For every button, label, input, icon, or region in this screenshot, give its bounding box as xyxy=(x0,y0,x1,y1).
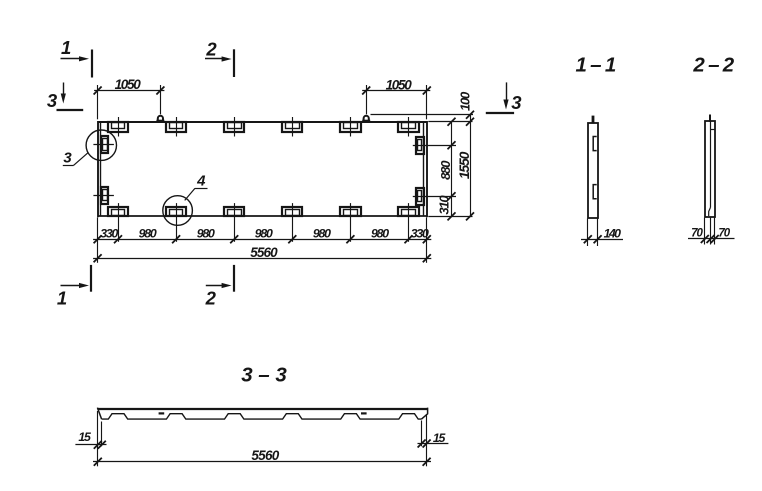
svg-text:880: 880 xyxy=(438,160,453,180)
svg-text:980: 980 xyxy=(371,227,389,241)
svg-text:310: 310 xyxy=(436,195,451,215)
svg-text:15: 15 xyxy=(433,431,446,445)
svg-text:1050: 1050 xyxy=(386,78,413,93)
svg-text:70: 70 xyxy=(718,228,730,240)
svg-text:1: 1 xyxy=(61,37,71,58)
svg-text:15: 15 xyxy=(78,430,91,444)
svg-text:330: 330 xyxy=(100,227,118,241)
svg-text:100: 100 xyxy=(458,91,473,111)
svg-text:140: 140 xyxy=(604,226,621,240)
svg-text:4: 4 xyxy=(196,172,206,189)
svg-text:2 – 2: 2 – 2 xyxy=(692,53,734,76)
svg-text:70: 70 xyxy=(691,228,703,240)
svg-text:980: 980 xyxy=(313,227,331,241)
svg-text:3 – 3: 3 – 3 xyxy=(241,364,287,387)
svg-text:980: 980 xyxy=(139,227,157,241)
svg-text:3: 3 xyxy=(47,90,58,111)
svg-text:1050: 1050 xyxy=(115,77,142,92)
svg-text:2: 2 xyxy=(205,288,217,309)
svg-text:330: 330 xyxy=(411,227,429,241)
svg-text:980: 980 xyxy=(197,227,215,241)
svg-text:1550: 1550 xyxy=(456,151,472,179)
svg-text:3: 3 xyxy=(63,149,72,166)
svg-text:1 – 1: 1 – 1 xyxy=(575,53,615,76)
svg-text:5560: 5560 xyxy=(250,245,278,260)
svg-text:980: 980 xyxy=(255,227,273,241)
svg-text:1: 1 xyxy=(57,288,67,309)
svg-text:5560: 5560 xyxy=(251,448,279,463)
svg-text:2: 2 xyxy=(205,39,217,60)
svg-text:3: 3 xyxy=(511,92,522,113)
